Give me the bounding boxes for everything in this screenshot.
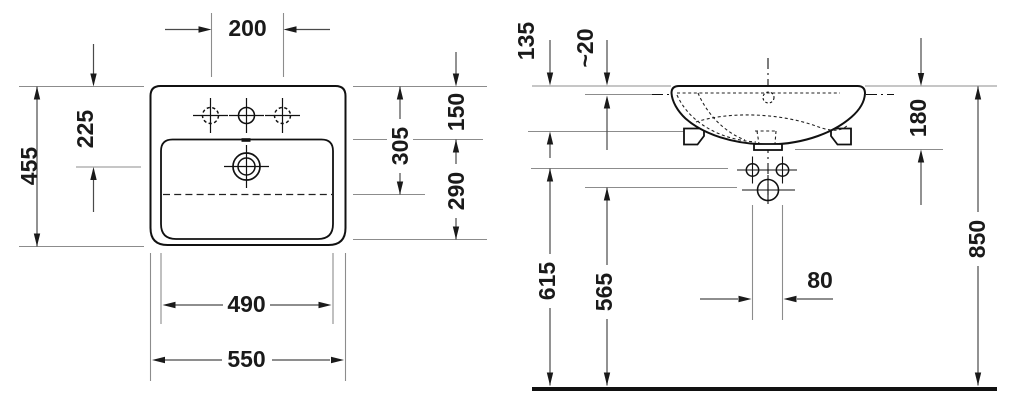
side-view: 135 ~20 180 615 565 850 80	[513, 22, 997, 389]
dim-label-overall-depth: 455	[16, 147, 42, 186]
dim-label-overall-width: 550	[227, 346, 265, 372]
drain-outlet-flange	[754, 144, 782, 150]
dim-label-fixing-hole-spacing: 80	[807, 267, 833, 293]
fixing-and-drain-holes	[737, 157, 797, 205]
dim-label-floor-to-rim: 850	[964, 220, 990, 258]
bowl-back-notch	[242, 138, 251, 142]
drawing-canvas: 200 455 225 305 150 290 490 550	[0, 0, 1024, 418]
dim-label-floor-to-outlet: 565	[591, 273, 617, 312]
dim-label-rim-to-outlet: 180	[905, 99, 931, 137]
drain-hole-crosshair	[742, 175, 795, 204]
dim-label-floor-to-fixing-holes: 615	[534, 262, 560, 301]
washbasin-technical-drawing: 200 455 225 305 150 290 490 550	[0, 0, 1024, 418]
dim-label-bowl-width: 490	[227, 291, 265, 317]
dim-label-tap-spacing: 200	[228, 15, 266, 41]
fixing-lug-left	[684, 129, 704, 145]
dim-label-body-height: 135	[513, 22, 539, 61]
basin-plan-outline	[151, 86, 346, 245]
front-view: 200 455 225 305 150 290 490 550	[16, 13, 487, 381]
dim-label-bowl-length: 305	[387, 127, 413, 166]
dim-label-rim-to-bowl-back: 150	[443, 93, 469, 131]
dim-label-rim-to-overflow: 225	[72, 110, 98, 149]
dim-label-rim-thickness: ~20	[572, 28, 598, 67]
dim-label-bowl-back-to-front: 290	[443, 172, 469, 210]
fixing-lug-right	[831, 129, 851, 145]
